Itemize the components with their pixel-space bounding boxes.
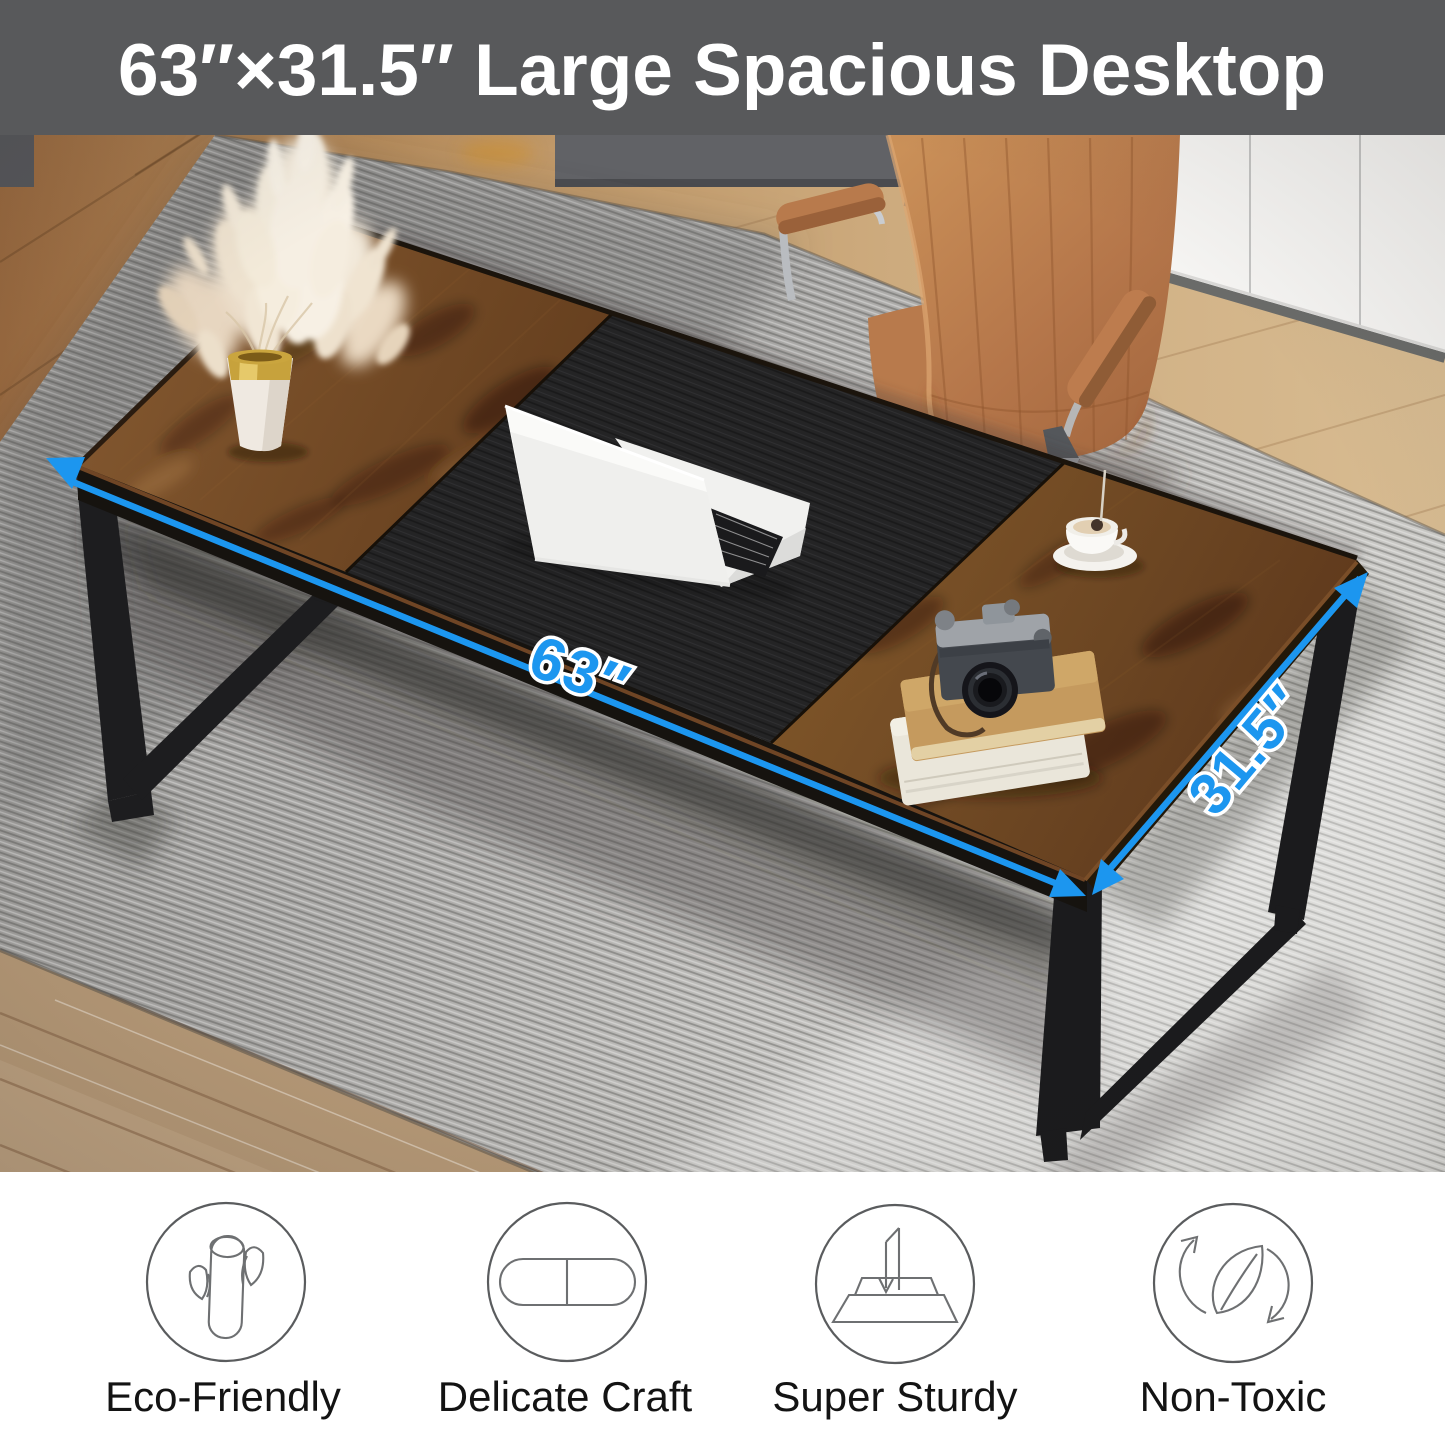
svg-text:Delicate Craft: Delicate Craft — [438, 1373, 693, 1420]
svg-text:63″×31.5″ Large Spacious Deskt: 63″×31.5″ Large Spacious Desktop — [118, 30, 1326, 111]
svg-text:Super Sturdy: Super Sturdy — [772, 1373, 1017, 1420]
svg-text:Non-Toxic: Non-Toxic — [1140, 1373, 1327, 1420]
svg-text:Eco-Friendly: Eco-Friendly — [105, 1373, 341, 1420]
